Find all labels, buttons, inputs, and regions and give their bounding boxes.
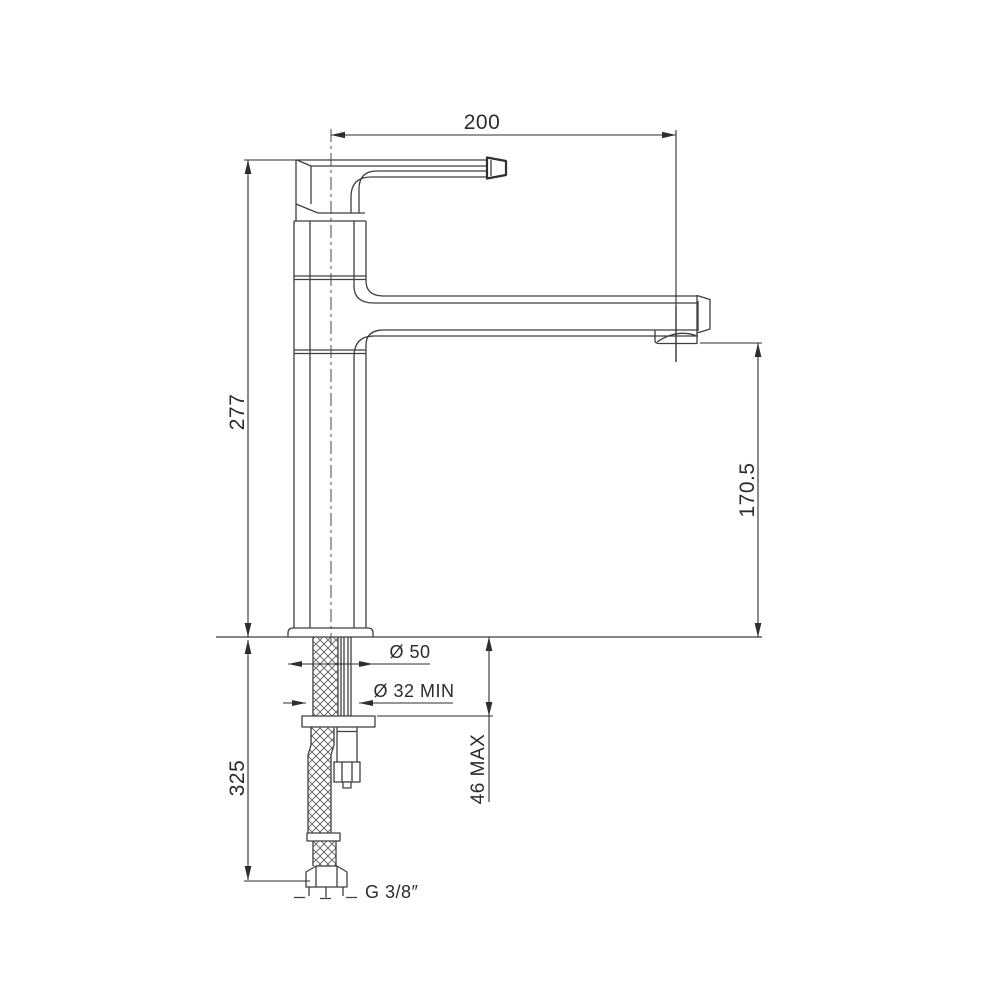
dim-height-above-deck: 277 bbox=[226, 160, 297, 637]
dim-outlet-height-label: 170.5 bbox=[736, 462, 759, 517]
dim-min-hole-label: Ø 32 MIN bbox=[373, 681, 454, 701]
dim-height-label: 277 bbox=[226, 394, 249, 431]
handle-lever bbox=[297, 158, 506, 214]
spout-end-cap bbox=[697, 296, 710, 334]
dim-below-deck: 325 bbox=[226, 640, 310, 881]
hose-end-nut bbox=[294, 866, 357, 899]
dim-spout-reach: 200 bbox=[331, 111, 676, 362]
dim-base-diameter: Ø 50 bbox=[288, 642, 431, 667]
thread-label-group: G 3/8″ bbox=[365, 882, 419, 902]
dim-base-diameter-label: Ø 50 bbox=[389, 642, 430, 662]
dim-spout-reach-label: 200 bbox=[464, 111, 501, 134]
technical-drawing-page: 200 277 170.5 Ø 50 bbox=[0, 0, 1000, 1000]
dim-max-counter-thickness: 46 MAX bbox=[377, 637, 493, 804]
threaded-shank bbox=[313, 637, 351, 716]
supply-hose bbox=[307, 727, 340, 866]
faucet-dimension-drawing: 200 277 170.5 Ø 50 bbox=[0, 0, 1000, 1000]
mounting-bracket bbox=[302, 716, 375, 727]
spout-arm bbox=[354, 281, 710, 357]
body-column bbox=[294, 129, 366, 645]
dim-spout-outlet-height: 170.5 bbox=[700, 343, 762, 637]
thread-label: G 3/8″ bbox=[365, 882, 419, 902]
dim-min-hole: Ø 32 MIN bbox=[283, 681, 455, 706]
dim-max-thickness-label: 46 MAX bbox=[468, 734, 489, 805]
dim-below-deck-label: 325 bbox=[226, 760, 249, 797]
mounting-stud-nut bbox=[334, 727, 360, 788]
dimensions: 200 277 170.5 Ø 50 bbox=[226, 111, 762, 902]
break-marks bbox=[294, 898, 357, 899]
hose-collar bbox=[307, 833, 340, 841]
supply-pipes bbox=[341, 637, 351, 716]
handle-end-cap bbox=[487, 158, 506, 179]
